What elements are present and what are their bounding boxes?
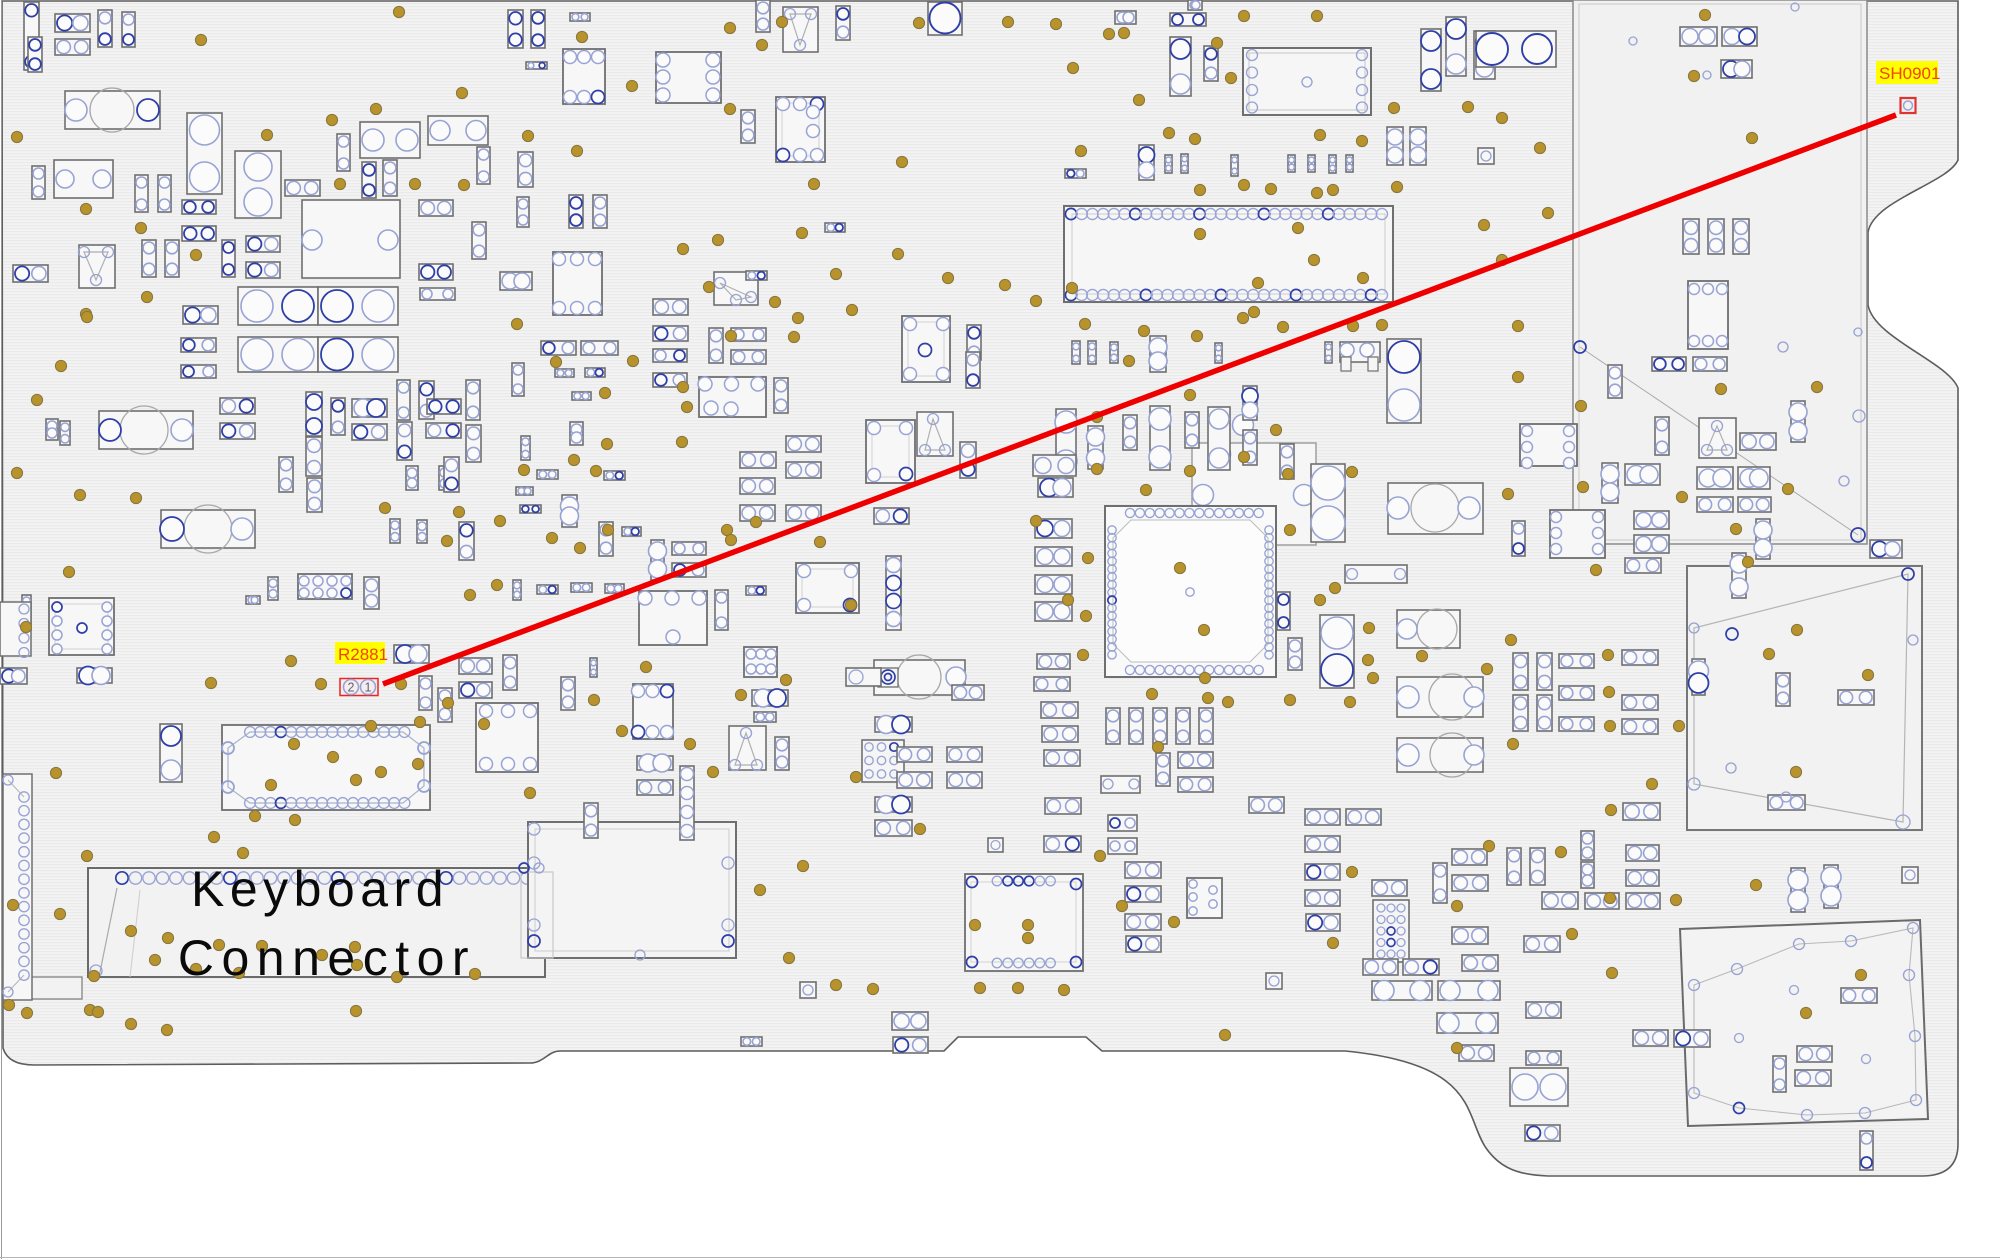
svg-text:R2881: R2881 — [338, 645, 388, 664]
svg-text:Connector: Connector — [178, 930, 476, 986]
svg-text:1: 1 — [365, 681, 372, 695]
svg-text:SH0901: SH0901 — [1879, 64, 1940, 83]
svg-text:Keyboard: Keyboard — [191, 861, 449, 917]
svg-text:2: 2 — [348, 681, 355, 695]
